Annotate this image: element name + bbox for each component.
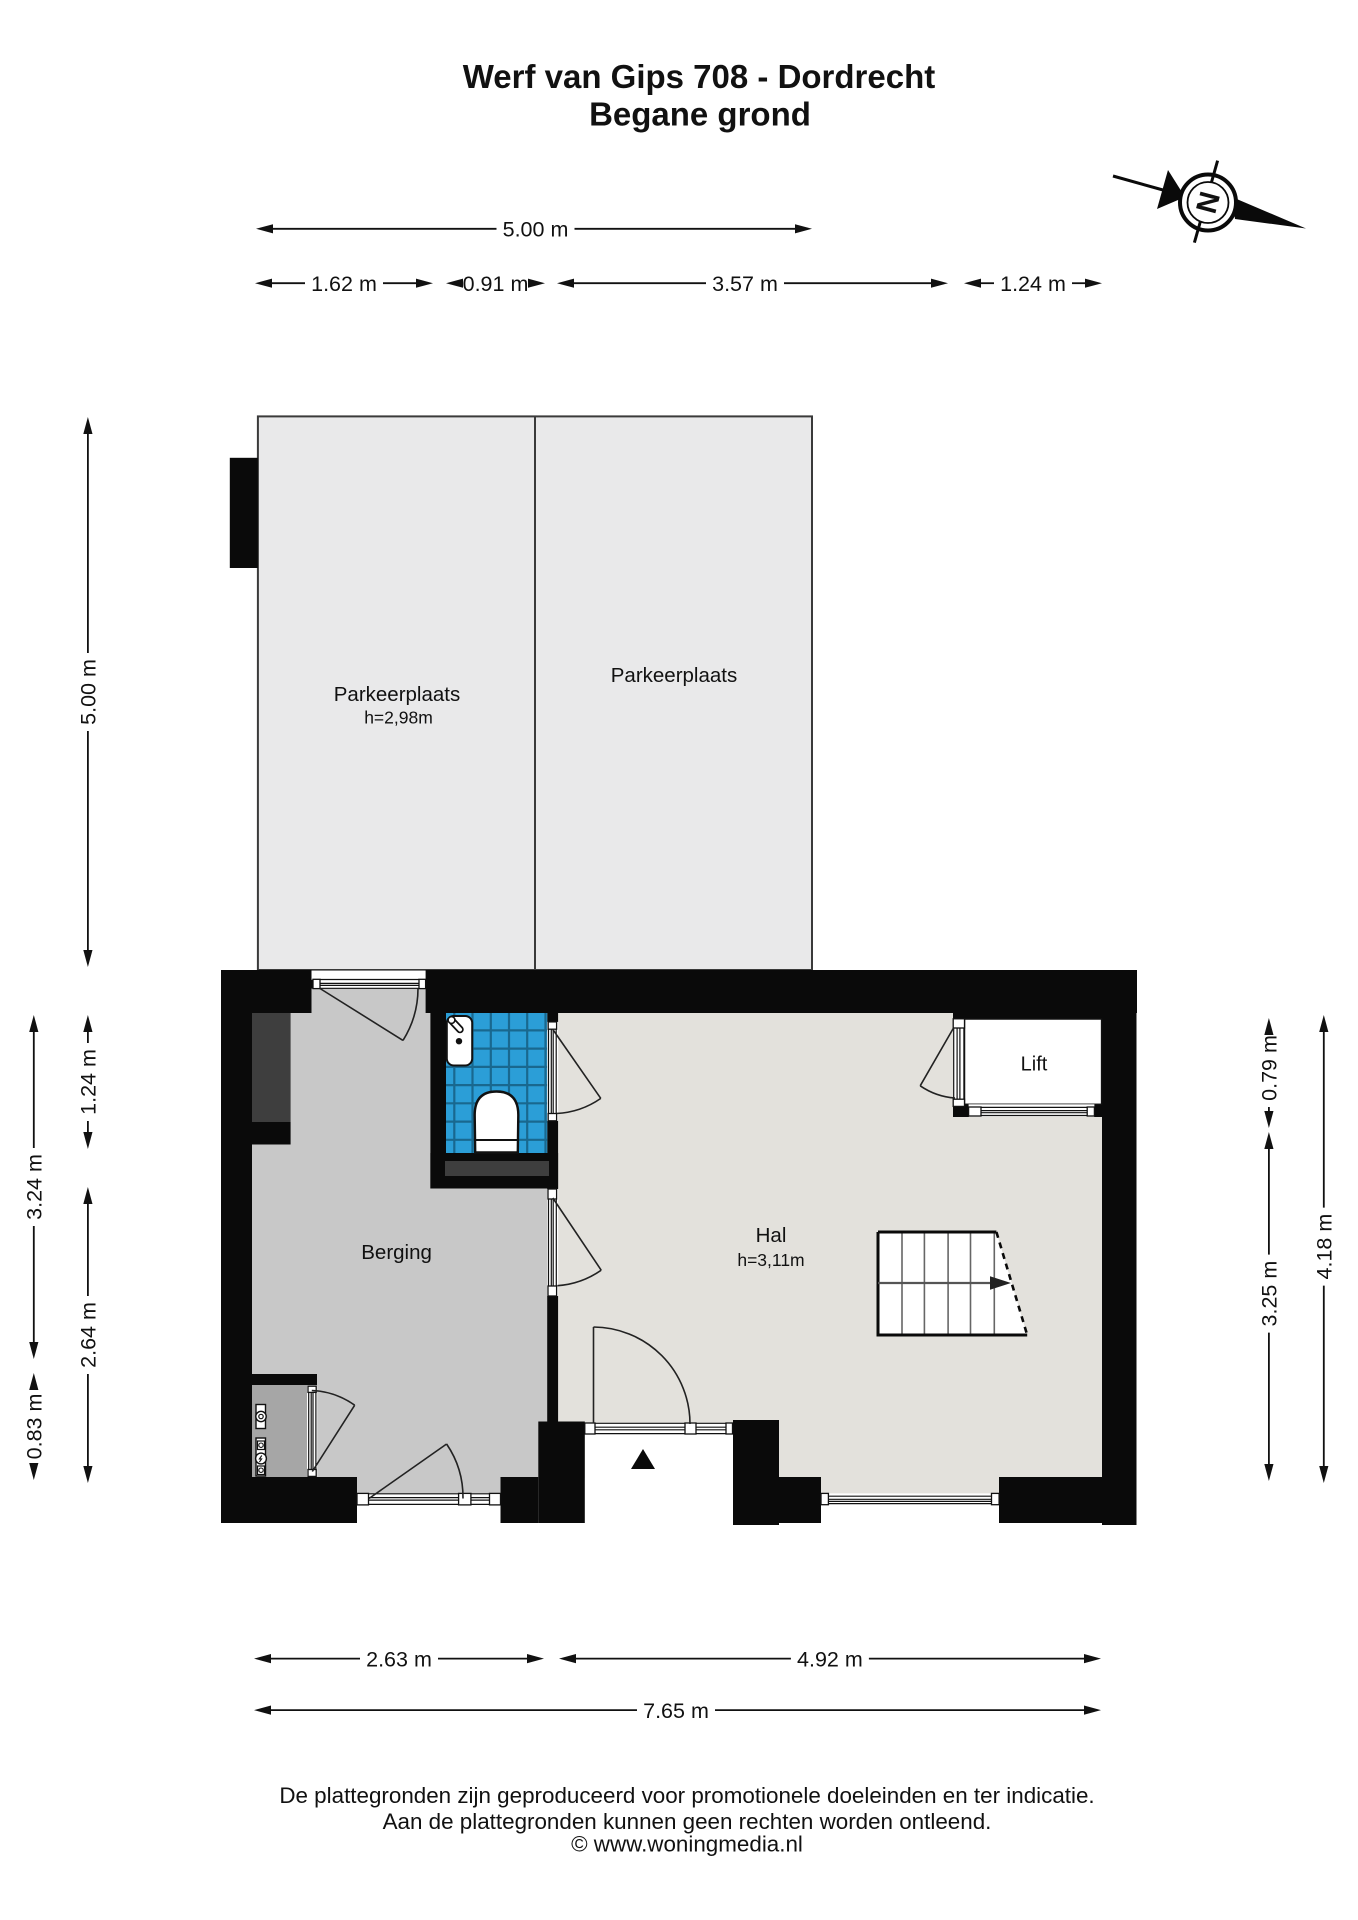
svg-text:4.92 m: 4.92 m bbox=[797, 1647, 863, 1671]
svg-text:De plattegronden zijn geproduc: De plattegronden zijn geproduceerd voor … bbox=[279, 1783, 1094, 1808]
svg-text:Hal: Hal bbox=[756, 1224, 787, 1247]
svg-text:5.00 m: 5.00 m bbox=[503, 218, 569, 242]
svg-text:3.24 m: 3.24 m bbox=[23, 1154, 47, 1220]
svg-text:0.83 m: 0.83 m bbox=[23, 1394, 47, 1460]
svg-text:2.64 m: 2.64 m bbox=[77, 1302, 101, 1368]
svg-text:2.63 m: 2.63 m bbox=[366, 1647, 432, 1671]
svg-text:0.79 m: 0.79 m bbox=[1258, 1035, 1282, 1101]
svg-text:4.18 m: 4.18 m bbox=[1313, 1214, 1337, 1280]
svg-text:h=3,11m: h=3,11m bbox=[737, 1250, 804, 1270]
svg-text:Parkeerplaats: Parkeerplaats bbox=[334, 683, 460, 706]
svg-text:7.65 m: 7.65 m bbox=[643, 1699, 709, 1723]
svg-text:© www.woningmedia.nl: © www.woningmedia.nl bbox=[571, 1832, 803, 1857]
svg-text:Begane grond: Begane grond bbox=[589, 96, 811, 133]
svg-text:1.62 m: 1.62 m bbox=[311, 272, 377, 296]
svg-text:Lift: Lift bbox=[1021, 1053, 1048, 1075]
svg-text:Werf van Gips 708 - Dordrecht: Werf van Gips 708 - Dordrecht bbox=[463, 58, 936, 95]
svg-text:1.24 m: 1.24 m bbox=[1000, 272, 1066, 296]
svg-text:3.25 m: 3.25 m bbox=[1258, 1261, 1282, 1327]
svg-text:3.57 m: 3.57 m bbox=[712, 272, 778, 296]
svg-text:5.00 m: 5.00 m bbox=[77, 659, 101, 725]
svg-text:Aan de plattegronden kunnen ge: Aan de plattegronden kunnen geen rechten… bbox=[383, 1809, 992, 1834]
svg-text:1.24 m: 1.24 m bbox=[77, 1049, 101, 1115]
svg-text:Parkeerplaats: Parkeerplaats bbox=[611, 664, 737, 687]
svg-text:h=2,98m: h=2,98m bbox=[364, 708, 433, 728]
svg-text:0.91 m: 0.91 m bbox=[463, 272, 529, 296]
svg-text:Berging: Berging bbox=[361, 1241, 432, 1264]
